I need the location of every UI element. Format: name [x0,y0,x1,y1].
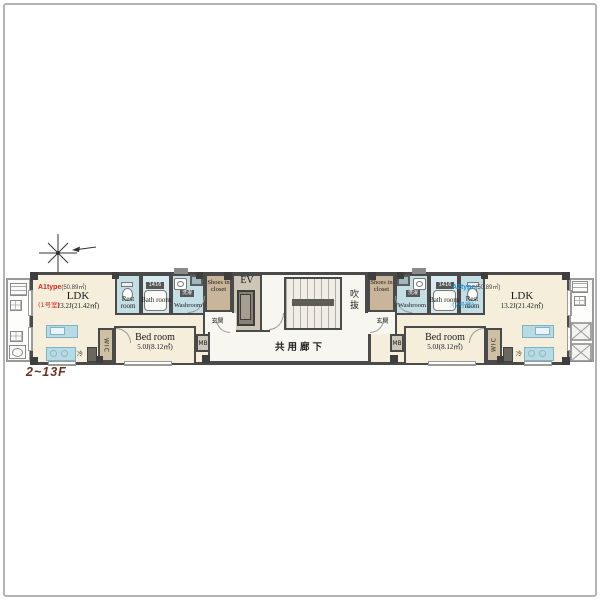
bedroom-name: Bed room [114,333,196,344]
storage-shaft-box [503,347,513,362]
bathroom-label: Bath room [429,297,459,304]
balcony-left-equipment [10,283,27,296]
shoes-closet-label: Shoes in closet [368,280,395,294]
column-post [30,357,38,365]
balcony-left-unit-box [10,331,23,342]
column-post [562,272,570,280]
ldk-label-a1: LDK 13.2J(21.42㎡) [46,291,110,310]
window [28,290,33,316]
window [524,361,552,366]
fridge-label: 冷 [77,349,83,358]
kitchen-sink-icon [50,327,65,335]
burner-icon [528,350,535,357]
bedroom-label-a1: Bed room 5.0J(8.12㎡) [114,333,196,351]
washroom-label: Washroom [171,303,205,310]
wic-label: WIC [98,328,114,362]
sink-bowl-icon [177,281,184,287]
ldk-name: LDK [46,291,110,303]
entrance-label: 玄関 [205,316,230,325]
north-compass-icon [28,230,102,276]
balcony-right-unit-box [574,296,586,306]
trunk-box-x-icon [570,343,592,362]
column-post [202,355,210,363]
bedroom-label-a2: Bed room 5.0J(8.12㎡) [404,333,486,351]
column-post [397,272,404,279]
column-post [196,272,203,279]
floorplan-canvas: 1416 洗濯 洗濯 1416 [0,0,600,600]
atrium-label: 吹抜 [346,289,360,329]
unit-a1-type: A1type [38,284,61,291]
elevator-door-icon [240,294,251,320]
window [567,290,572,316]
burner-icon [539,350,546,357]
vent-bump [174,268,188,274]
fridge-label: 冷 [516,349,522,358]
entrance-label: 玄関 [370,316,395,325]
bedroom-size: 5.0J(8.12㎡) [114,344,196,351]
restroom-label: Rest room [115,296,141,311]
toilet-icon [121,282,133,287]
burner-icon [61,350,68,357]
ldk-size: 13.2J(21.42㎡) [490,303,554,310]
restroom-label: Rest room [459,296,485,311]
fan-icon [12,348,23,357]
balcony-right-equipment [572,281,588,293]
bedroom-size: 5.0J(8.12㎡) [404,344,486,351]
ldk-size: 13.2J(21.42㎡) [46,303,110,310]
burner-icon [50,350,57,357]
bathroom-label: Bath room [141,297,171,304]
wic-label: WIC [486,328,502,362]
window [428,361,476,366]
column-post [390,355,398,363]
balcony-left-outdoor-unit [9,345,26,359]
floor-range-label: 2~13F [26,365,67,379]
ldk-name: LDK [490,291,554,303]
corridor-label: 共用廊下 [208,339,392,353]
kitchen-sink-icon [535,327,550,335]
column-post [30,272,38,280]
sink-bowl-icon [416,281,423,287]
column-post [562,357,570,365]
balcony-left-unit-box [10,300,22,311]
trunk-box-x-icon [570,322,592,341]
window [28,327,33,351]
bath-size-tag: 1416 [146,282,164,289]
elevator-label: EV [232,276,262,287]
vent-bump [412,268,426,274]
bedroom-name: Bed room [404,333,486,344]
stair-landing-bar [292,299,334,306]
washroom-label: Washroom [395,303,429,310]
window [124,361,172,366]
shoes-closet-label: Shoes in closet [205,280,232,294]
ldk-label-a2: LDK 13.2J(21.42㎡) [490,291,554,310]
window [567,327,572,351]
unit-a2-type: A2type [452,284,475,291]
meter-box-label: MB [390,334,404,352]
